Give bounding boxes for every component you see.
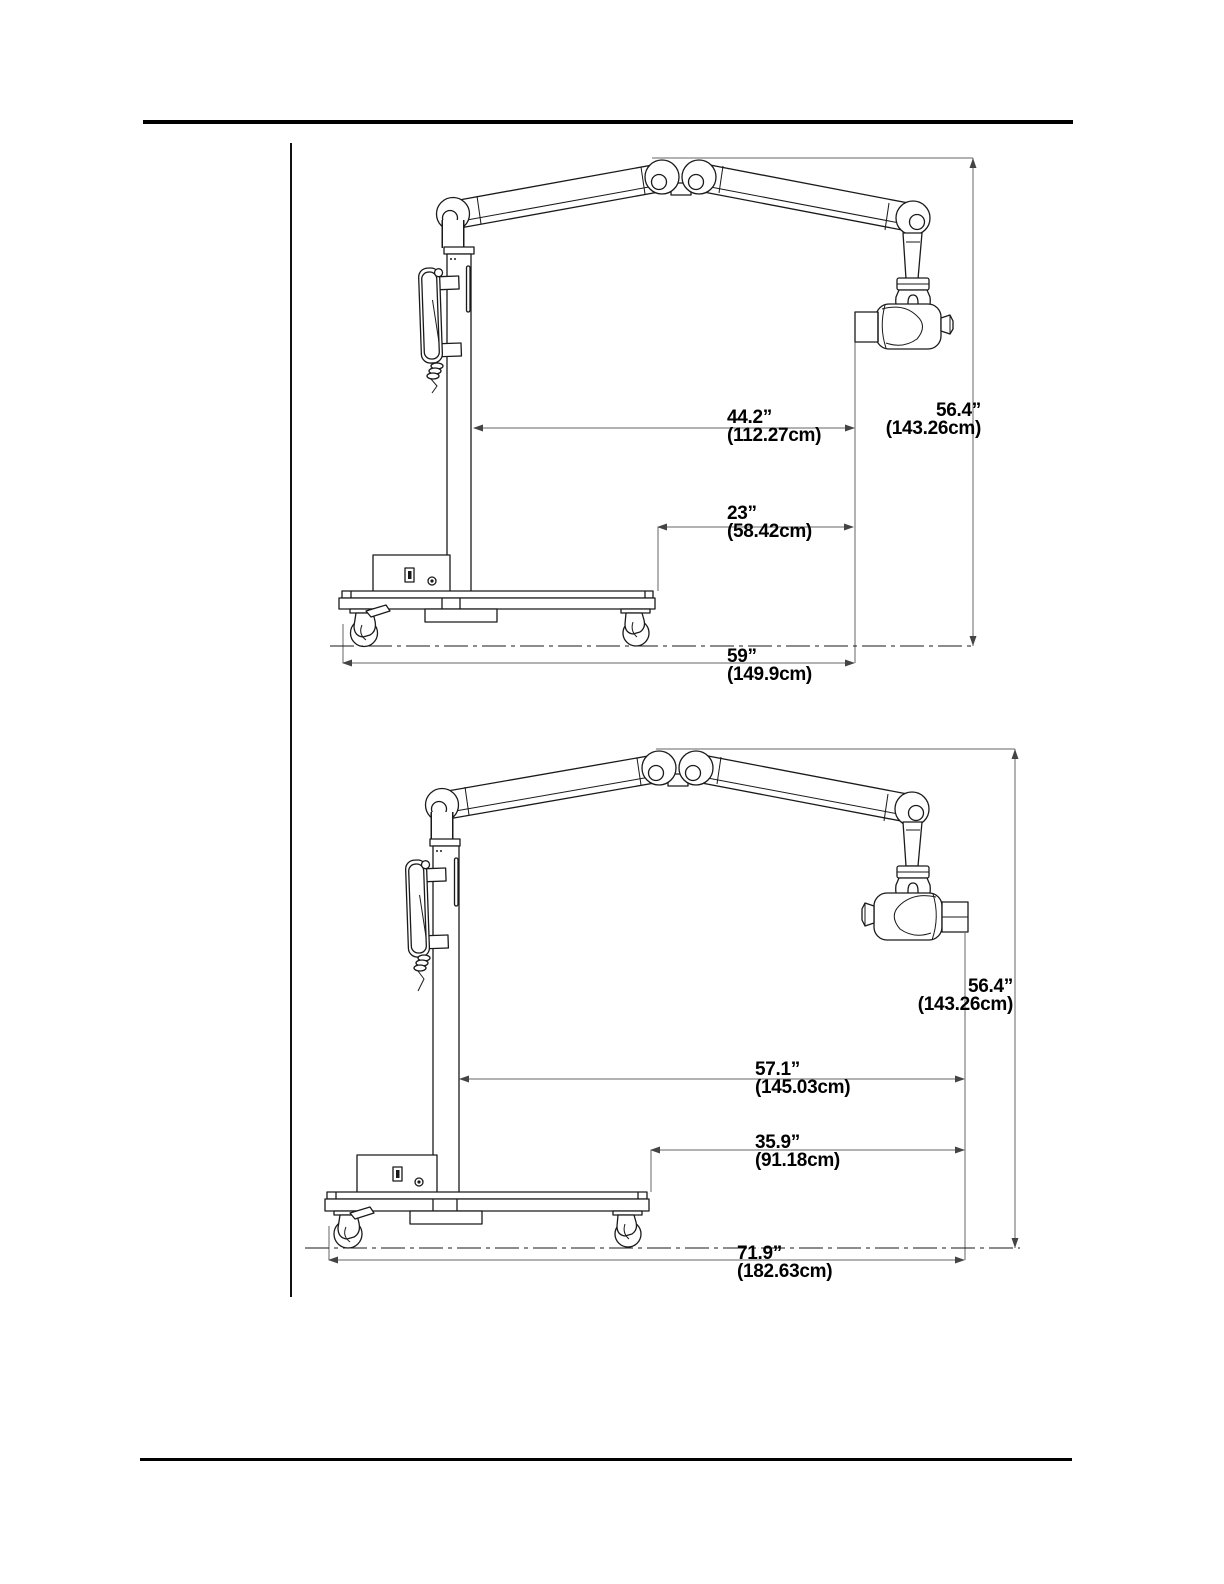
tube-head bbox=[876, 304, 941, 349]
dim-label-head-offset-top: 23” (58.42cm) bbox=[727, 505, 812, 540]
dim-label-head-offset-bottom: 35.9” (91.18cm) bbox=[755, 1134, 840, 1169]
dim-label-footprint-bottom: 71.9” (182.63cm) bbox=[737, 1245, 832, 1280]
document-page: 44.2” (112.27cm) 56.4” (143.26cm) 23” (5… bbox=[0, 0, 1224, 1584]
cone bbox=[862, 903, 874, 926]
collimator bbox=[855, 312, 878, 342]
base bbox=[325, 1199, 649, 1211]
dim-label-base-length-top: 59” (149.9cm) bbox=[727, 648, 812, 683]
dim-label-height-bottom: 56.4” (143.26cm) bbox=[891, 978, 1013, 1013]
dim-label-arm-reach-bottom: 57.1” (145.03cm) bbox=[755, 1061, 850, 1096]
technical-drawing bbox=[0, 0, 1224, 1584]
dim-label-height-top: 56.4” (143.26cm) bbox=[859, 402, 981, 437]
cone bbox=[941, 315, 953, 334]
dim-label-arm-reach-top: 44.2” (112.27cm) bbox=[727, 409, 821, 444]
